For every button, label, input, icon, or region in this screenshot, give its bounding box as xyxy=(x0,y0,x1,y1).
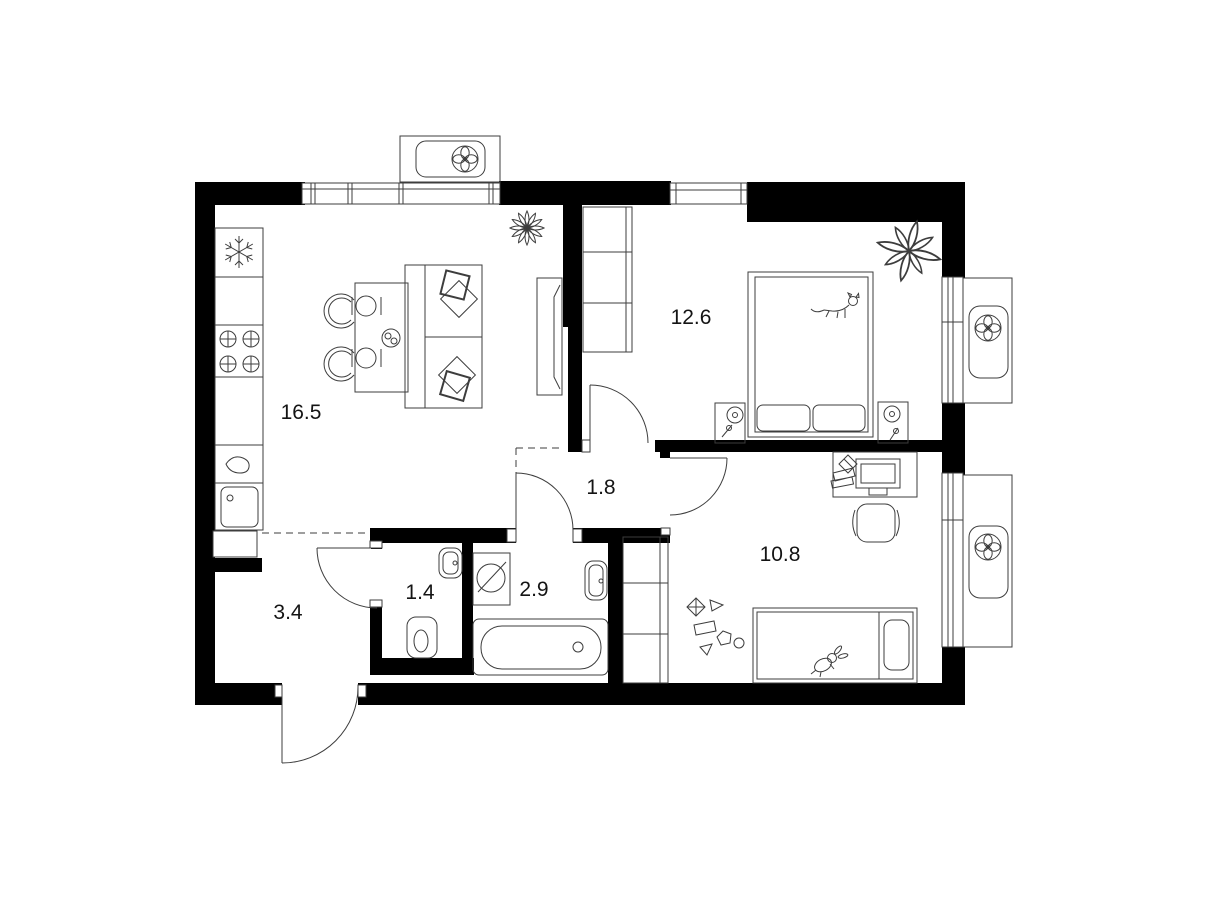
room-label-bedroom: 12.6 xyxy=(671,306,712,329)
window-kids-right xyxy=(942,473,963,647)
wardrobe xyxy=(623,537,668,683)
wall-kitchen-bedroom-lower xyxy=(568,327,582,452)
floor-plan-canvas: 16.5 12.6 1.8 10.8 3.4 1.4 2.9 xyxy=(0,0,1207,905)
toy-diamond-icon xyxy=(839,455,857,473)
plant-icon xyxy=(510,211,544,245)
room-label-kids-room: 10.8 xyxy=(760,543,801,566)
door-kids-room xyxy=(670,458,727,515)
toilet xyxy=(407,617,437,658)
bathroom-sink xyxy=(585,561,607,600)
wall-right-mid xyxy=(942,403,965,475)
ac-unit-top xyxy=(400,136,500,182)
fan-icon xyxy=(975,534,1001,560)
wall-duct-stub xyxy=(212,558,262,572)
cat-icon xyxy=(811,293,859,318)
wall-band-right xyxy=(573,528,670,543)
wall-wc-bottom xyxy=(370,658,474,675)
stove xyxy=(220,331,259,372)
wall-wc-left xyxy=(370,607,382,660)
wall-bedroom-kids xyxy=(655,440,945,452)
nightstand xyxy=(878,402,908,443)
kitchen-counter xyxy=(215,228,263,530)
stove-burner-icon xyxy=(220,331,236,347)
jamb-entry-left xyxy=(275,685,282,697)
room-label-bathroom: 2.9 xyxy=(519,578,548,601)
wall-kitchen-bedroom-upper xyxy=(563,203,582,327)
bed-pillow xyxy=(884,620,909,670)
sofa-pillow xyxy=(440,371,470,401)
wall-band-left xyxy=(370,528,516,543)
floor-plan: 16.5 12.6 1.8 10.8 3.4 1.4 2.9 xyxy=(0,0,1207,905)
fan-icon xyxy=(452,146,478,172)
wall-bottom xyxy=(358,683,965,705)
wall-bottom-left xyxy=(195,683,282,705)
ac-unit-kids xyxy=(963,475,1012,647)
room-label-corridor: 3.4 xyxy=(273,601,303,624)
dining-chair xyxy=(329,298,351,324)
jamb-bedroom xyxy=(582,440,590,452)
stove-burner-icon xyxy=(243,356,259,372)
lamp-icon xyxy=(884,406,900,422)
jamb-wc-bottom xyxy=(370,600,382,607)
door-bathroom xyxy=(516,473,573,530)
wall-bath-kids xyxy=(608,542,623,683)
monitor-icon xyxy=(856,459,900,488)
wall-right-upper xyxy=(942,222,965,278)
snowflake-icon xyxy=(223,236,255,268)
bedroom xyxy=(583,207,941,443)
wc-sink xyxy=(439,548,462,578)
duct-box xyxy=(213,531,257,557)
books-icon xyxy=(831,468,855,488)
tv-unit xyxy=(537,278,562,395)
washing-machine xyxy=(473,553,510,605)
kids-room xyxy=(623,452,917,683)
window-bedroom-right xyxy=(942,277,963,403)
window-kitchen xyxy=(302,183,500,204)
door-wc xyxy=(317,548,377,608)
jamb-entry-right xyxy=(358,685,366,697)
dining-chair xyxy=(329,351,351,377)
wall-wc-bath xyxy=(462,530,473,675)
stove-burner-icon xyxy=(243,331,259,347)
desk xyxy=(831,452,917,497)
wall-hall-post xyxy=(660,447,670,458)
plant-icon xyxy=(877,221,941,282)
desk-chair xyxy=(853,504,900,542)
open-boundaries xyxy=(262,448,563,533)
kitchen-sink xyxy=(221,487,258,527)
kids-bed xyxy=(753,608,917,683)
jamb-kids xyxy=(661,528,670,535)
room-label-hall: 1.8 xyxy=(586,476,615,499)
kitchen-living-room xyxy=(215,211,562,530)
fruit-bowl-icon xyxy=(382,329,400,347)
jamb-wc-top xyxy=(370,541,382,548)
window-bedroom-top xyxy=(670,183,747,204)
bed-pillow xyxy=(757,405,810,431)
bathtub xyxy=(473,619,608,675)
toys-icons xyxy=(687,598,744,655)
door-bedroom xyxy=(590,385,648,443)
place-setting xyxy=(352,348,381,368)
bunny-toy-icon xyxy=(811,645,848,677)
wardrobe xyxy=(583,207,632,352)
place-setting xyxy=(352,296,381,316)
jamb-bath-right xyxy=(573,529,582,542)
room-label-wc: 1.4 xyxy=(405,581,435,604)
dining-table xyxy=(352,283,408,392)
ac-unit-bedroom xyxy=(963,278,1012,403)
stove-burner-icon xyxy=(220,356,236,372)
sofa xyxy=(405,265,482,408)
bathroom xyxy=(473,553,608,675)
jamb-bath-left xyxy=(507,529,516,542)
wall-top-mid xyxy=(499,181,671,205)
wall-left xyxy=(195,182,215,683)
fan-icon xyxy=(975,315,1001,341)
bed-pillow xyxy=(813,405,865,431)
lamp-icon xyxy=(727,407,743,423)
door-entrance xyxy=(282,687,358,763)
wall-top-right xyxy=(747,182,965,222)
nightstand xyxy=(715,403,745,443)
kettle-icon xyxy=(226,457,249,473)
room-label-kitchen-living: 16.5 xyxy=(281,401,322,424)
